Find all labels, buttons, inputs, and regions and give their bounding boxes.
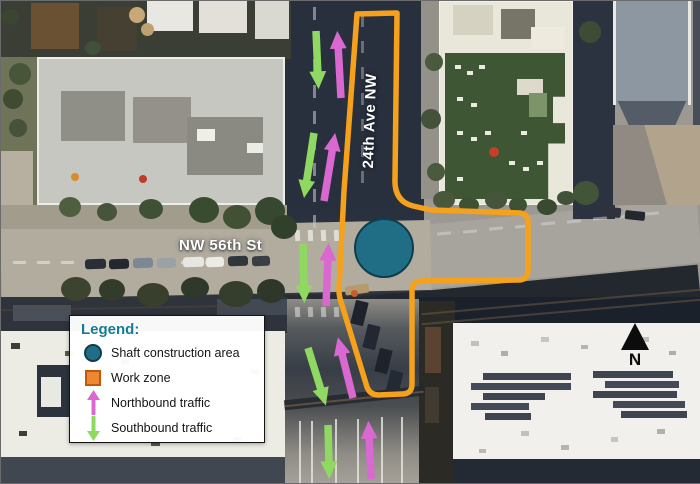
rooftop-tank bbox=[129, 7, 145, 23]
side-yard-paving bbox=[1, 151, 33, 205]
sidewalk bbox=[1, 205, 287, 229]
legend-item-southbound: Southbound traffic bbox=[81, 415, 256, 440]
street-label-nw-56th-st: NW 56th St bbox=[179, 237, 262, 254]
roof-detail bbox=[425, 327, 441, 373]
roof-detail bbox=[425, 387, 439, 423]
roof-detail bbox=[501, 9, 535, 39]
roof-courtyard bbox=[61, 91, 125, 141]
legend-panel: Legend: Shaft construction area Work zon… bbox=[69, 315, 265, 443]
sidewalk bbox=[421, 1, 441, 199]
legend-title: Legend: bbox=[81, 321, 256, 338]
warehouse-roof-hip bbox=[613, 101, 691, 125]
rooftop-tank bbox=[141, 23, 154, 36]
building-roof bbox=[255, 1, 289, 39]
legend-item-shaft: Shaft construction area bbox=[81, 340, 256, 365]
legend-label: Southbound traffic bbox=[105, 421, 212, 435]
vertical-street-south bbox=[284, 299, 424, 483]
roof-detail bbox=[531, 27, 565, 49]
roof-courtyard bbox=[133, 97, 191, 143]
building-roof bbox=[147, 1, 193, 31]
rooftop-vent bbox=[217, 299, 287, 315]
large-building-roof bbox=[37, 57, 285, 205]
warehouse-roof bbox=[613, 1, 691, 105]
north-arrow-icon bbox=[621, 323, 649, 350]
north-label: N bbox=[613, 351, 657, 369]
green-roof-terrace bbox=[445, 53, 565, 199]
rooftop-vent bbox=[13, 305, 71, 321]
dark-building bbox=[1, 457, 285, 483]
southbound-arrow-icon bbox=[86, 415, 101, 441]
work-zone-swatch bbox=[85, 370, 101, 386]
map-canvas: NW 56th St 24th Ave NW N Legend: Shaft c… bbox=[0, 0, 700, 484]
street-label-24th-ave-nw: 24th Ave NW bbox=[360, 73, 380, 169]
building-roof bbox=[199, 1, 247, 33]
roof-lawn-patch bbox=[529, 93, 547, 117]
shaft-area-swatch bbox=[84, 344, 102, 362]
legend-label: Work zone bbox=[105, 371, 171, 385]
white-building-roof bbox=[453, 323, 700, 463]
legend-item-work-zone: Work zone bbox=[81, 365, 256, 390]
northbound-arrow-icon bbox=[86, 390, 101, 416]
dark-building bbox=[453, 459, 700, 483]
building-roof bbox=[31, 3, 79, 49]
roof-detail bbox=[41, 377, 61, 407]
shadow-alley bbox=[573, 1, 615, 219]
legend-label: Shaft construction area bbox=[105, 346, 240, 360]
north-compass: N bbox=[613, 323, 657, 369]
roof-detail bbox=[247, 143, 263, 153]
horizontal-street-west bbox=[0, 220, 431, 301]
roof-detail bbox=[197, 129, 215, 141]
roof-detail bbox=[453, 5, 493, 35]
legend-label: Northbound traffic bbox=[105, 396, 210, 410]
legend-item-northbound: Northbound traffic bbox=[81, 390, 256, 415]
